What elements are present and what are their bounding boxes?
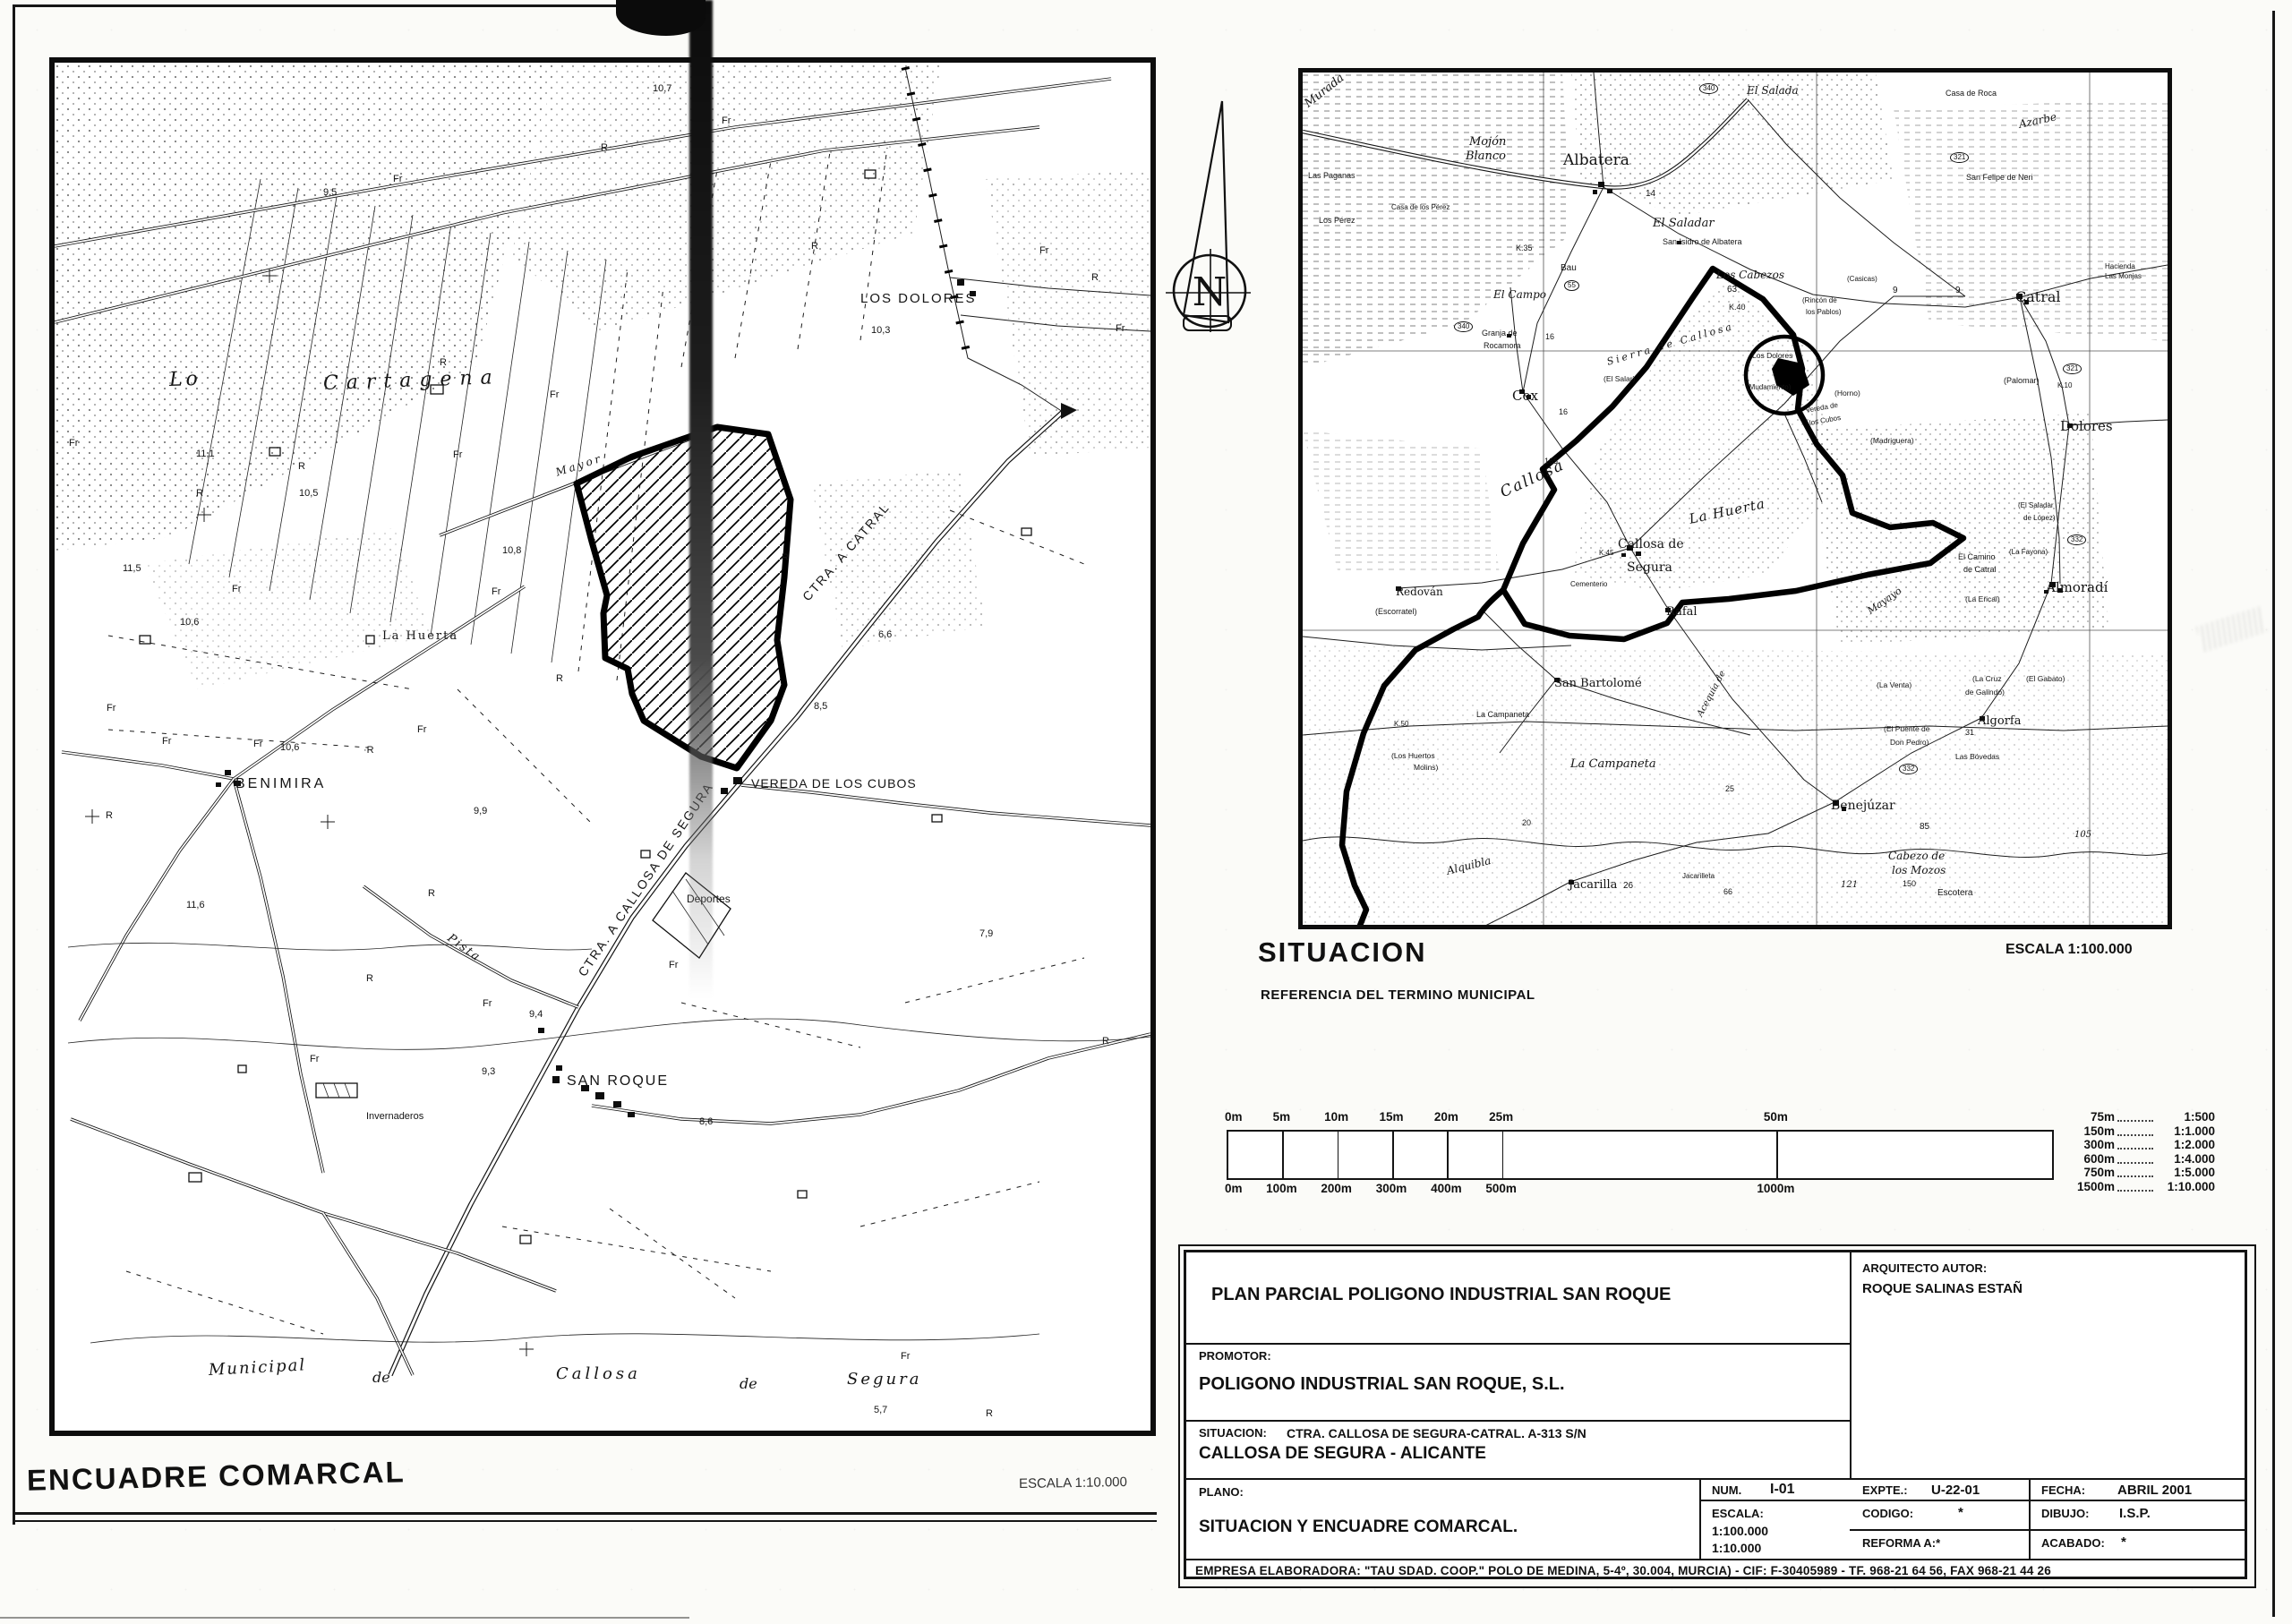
map-label: Los Dolores — [1752, 352, 1792, 360]
map-label: Callosa de — [1618, 538, 1684, 551]
graphic-scale-bar: 0m5m10m15m20m25m50m 0m100m200m300m400m50… — [1225, 1108, 2219, 1201]
map-label: 121 — [1841, 881, 1858, 890]
map-label: Fr — [393, 175, 402, 184]
map-label: R — [811, 242, 818, 252]
scale-ratio-part: 1500m — [2065, 1180, 2115, 1193]
scale-ratio-row: 1500m1:10.000 — [2065, 1180, 2215, 1193]
map-label: El Saladar — [1653, 218, 1715, 229]
acabado-value: * — [2121, 1534, 2126, 1550]
scale-mark: 10m — [1324, 1110, 1348, 1124]
situacion-title: SITUACION — [1258, 936, 1427, 969]
map-label: K.35 — [1516, 244, 1533, 252]
scanned-plan-sheet: 10,7LOS DOLORES10,3LoCartagena9,511,110,… — [0, 0, 2292, 1624]
map-label: La Campaneta — [1570, 758, 1656, 770]
north-arrow: N — [1150, 76, 1294, 363]
scale-mark: 0m — [1225, 1182, 1243, 1195]
map-label: de — [740, 1377, 757, 1391]
map-label: 31 — [1965, 729, 1974, 737]
scan-fold-shadow — [689, 0, 713, 998]
escala-2: 1:10.000 — [1712, 1541, 1761, 1555]
map-label: El Campo — [1493, 289, 1546, 300]
map-label: 105 — [2074, 831, 2091, 840]
situacion-label: SITUACION: — [1199, 1426, 1267, 1440]
project-title: PLAN PARCIAL POLIGONO INDUSTRIAL SAN ROQ… — [1211, 1285, 1671, 1305]
map-label: Bau — [1561, 264, 1577, 273]
map-label: La Huerta — [382, 630, 458, 642]
map-label: SAN ROQUE — [567, 1074, 669, 1089]
map-label: Segura — [847, 1372, 921, 1388]
scale-ratio-part: 150m — [2065, 1124, 2115, 1138]
scan-edge — [0, 1617, 689, 1619]
scale-ratio-row: 75m1:500 — [2065, 1110, 2215, 1124]
map-label: 10,6 — [180, 618, 199, 628]
map-label: Fr — [69, 439, 78, 449]
map-label: Las Bóvedas — [1955, 753, 1999, 761]
plano-value: SITUACION Y ENCUADRE COMARCAL. — [1199, 1517, 1518, 1537]
map-label: 16 — [1545, 333, 1554, 341]
promotor-label: PROMOTOR: — [1199, 1349, 1271, 1363]
map-label: 340 — [1454, 321, 1473, 332]
num-value: I-01 — [1770, 1482, 1795, 1498]
map-label: R — [601, 143, 608, 153]
map-label: K.45 — [1599, 550, 1613, 557]
map-label: Fr — [550, 390, 559, 400]
map-label: Fr — [107, 704, 115, 714]
map-label: Fr — [453, 450, 462, 460]
sheet-border — [13, 1520, 1157, 1522]
map-label: Pista — [445, 932, 483, 964]
scale-ratio-part — [2117, 1148, 2153, 1150]
right-map-labels: MuradaMojónBlancoAlbateraEl SaladaCasa d… — [1303, 73, 2168, 925]
promotor-value: POLIGONO INDUSTRIAL SAN ROQUE, S.L. — [1199, 1374, 1565, 1395]
map-label: Lo — [169, 370, 202, 390]
map-label: Fr — [162, 737, 171, 747]
scale-mark: 1000m — [1757, 1182, 1794, 1195]
map-label: Fr — [492, 587, 500, 597]
map-label: Cabezo de — [1888, 850, 1945, 861]
map-label: 55 — [1564, 280, 1579, 291]
map-label: 16 — [1559, 408, 1568, 416]
map-label: San Isidro de Albatera — [1663, 238, 1742, 246]
map-label: Fr — [483, 999, 492, 1009]
situacion-subtitle: REFERENCIA DEL TERMINO MUNICIPAL — [1261, 987, 1535, 1003]
scale-ratio-part — [2117, 1162, 2153, 1164]
map-label: Mojón — [1469, 136, 1506, 148]
map-label: (Escorratel) — [1375, 608, 1417, 616]
scale-tick — [1338, 1132, 1339, 1178]
empresa-note: EMPRESA ELABORADORA: "TAU SDAD. COOP." P… — [1195, 1564, 2051, 1577]
scale-tick — [1282, 1132, 1284, 1178]
map-label: Redován — [1396, 586, 1443, 597]
map-label: R — [106, 811, 113, 821]
map-label: K.40 — [1729, 303, 1746, 312]
map-label: Casa de los Pérez — [1391, 204, 1450, 211]
arquitecto-value: ROQUE SALINAS ESTAÑ — [1862, 1281, 2023, 1296]
map-label: 332 — [1899, 764, 1918, 774]
map-label: Blanco — [1466, 150, 1506, 162]
scale-mark: 50m — [1764, 1110, 1788, 1124]
map-label: (La Fayona) — [2009, 549, 2048, 556]
scale-bar-rect — [1227, 1130, 2054, 1180]
expte-value: U-22-01 — [1931, 1483, 1980, 1498]
map-label: R — [1102, 1037, 1109, 1047]
map-label: 332 — [2067, 534, 2086, 545]
scale-ratio-part: 750m — [2065, 1166, 2115, 1179]
map-label: de Galindo) — [1965, 688, 2005, 697]
map-label: Invernaderos — [366, 1112, 423, 1122]
map-label: 26 — [1623, 882, 1633, 891]
scale-tick — [1392, 1132, 1394, 1178]
scale-ratio-part: 1:10.000 — [2156, 1180, 2215, 1193]
map-label: 9,5 — [323, 188, 337, 198]
situacion-value: CTRA. CALLOSA DE SEGURA-CATRAL. A-313 S/… — [1287, 1426, 1586, 1440]
map-label: 10,3 — [871, 326, 890, 336]
map-label: de López) — [2023, 515, 2056, 522]
map-label: Casa de Roca — [1946, 90, 1997, 98]
map-label: 7,9 — [979, 929, 993, 939]
sheet-border — [13, 4, 691, 7]
map-label: (Rincón de — [1802, 297, 1837, 304]
map-label: R — [428, 889, 435, 899]
map-label: Cartagena — [323, 368, 500, 394]
map-label: los Cubos — [1809, 415, 1841, 427]
map-label: VEREDA DE LOS CUBOS — [751, 777, 917, 790]
map-label: (El Puente de — [1884, 725, 1930, 733]
map-label: Las Paganas — [1308, 172, 1356, 180]
sheet-border — [13, 4, 15, 1525]
map-label: Fr — [901, 1352, 910, 1362]
map-label: Almoradí — [2046, 581, 2108, 594]
map-label: Callosa — [556, 1366, 641, 1382]
map-label: 85 — [1920, 823, 1929, 832]
scale-ratio-part: 600m — [2065, 1152, 2115, 1166]
escala-label: ESCALA: — [1712, 1507, 1764, 1520]
fecha-value: ABRIL 2001 — [2117, 1483, 2192, 1498]
situacion-city: CALLOSA DE SEGURA - ALICANTE — [1199, 1444, 1486, 1464]
map-label: Las Monjas — [2105, 273, 2142, 280]
map-label: (La Cruz — [1972, 675, 2002, 683]
scale-ratio-part: 75m — [2065, 1110, 2115, 1124]
map-label: Jacarilleta — [1682, 873, 1715, 880]
map-label: (La Venta) — [1877, 681, 1911, 689]
scale-ratio-part: 1:4.000 — [2156, 1152, 2215, 1166]
map-label: (La Erical) — [1965, 595, 2000, 603]
arquitecto-label: ARQUITECTO AUTOR: — [1862, 1261, 1987, 1275]
scale-ratio-row: 600m1:4.000 — [2065, 1152, 2215, 1166]
num-label: NUM. — [1712, 1483, 1741, 1497]
fecha-label: FECHA: — [2041, 1483, 2085, 1497]
scale-mark: 20m — [1434, 1110, 1458, 1124]
map-label: El Salada — [1747, 85, 1799, 96]
scale-ratio-row: 750m1:5.000 — [2065, 1166, 2215, 1179]
map-label: Molins) — [1414, 764, 1438, 772]
map-label: CTRA. A CATRAL — [800, 500, 892, 603]
scale-ratio-part: 1:2.000 — [2156, 1138, 2215, 1151]
map-label: 10,8 — [502, 546, 521, 556]
map-label: R — [986, 1409, 993, 1419]
scale-mark: 200m — [1321, 1182, 1352, 1195]
map-label: 14 — [1646, 190, 1655, 199]
map-label: Fr — [417, 725, 426, 735]
codigo-label: CODIGO: — [1862, 1507, 1913, 1520]
map-label: Hacienda — [2105, 263, 2135, 270]
map-label: 340 — [1699, 83, 1718, 94]
scan-artifact — [616, 0, 706, 36]
map-label: ·R — [363, 746, 374, 756]
sheet-border — [2272, 11, 2275, 1617]
scale-tick — [1447, 1132, 1449, 1178]
map-label: de — [372, 1371, 390, 1385]
map-label: Fr — [232, 585, 241, 594]
expte-label: EXPTE.: — [1862, 1483, 1908, 1497]
map-label: 8,5 — [814, 702, 827, 712]
map-label: Fr — [722, 116, 731, 126]
map-label: El Camino — [1958, 553, 1996, 561]
map-label: San Bartolomé — [1554, 678, 1642, 689]
map-label: de Catral — [1963, 566, 1997, 574]
scale-ratio-part: 1:1.000 — [2156, 1124, 2215, 1138]
map-label: R — [1091, 273, 1099, 283]
map-label: (Casicas) — [1847, 276, 1877, 283]
map-label: 5,7 — [874, 1406, 887, 1415]
map-label: 10,5 — [299, 489, 318, 499]
map-label: Los Cabezos — [1716, 269, 1784, 280]
scale-ratio-row: 300m1:2.000 — [2065, 1138, 2215, 1151]
scale-ratio-part: 300m — [2065, 1138, 2115, 1151]
map-label: 8,6 — [699, 1117, 713, 1127]
map-label: Cementerio — [1570, 581, 1607, 588]
dibujo-label: DIBUJO: — [2041, 1507, 2089, 1520]
map-label: (Madriguera) — [1870, 437, 1914, 445]
scale-mark: 400m — [1431, 1182, 1462, 1195]
map-label: (Mudamiento) — [1747, 384, 1791, 391]
map-label: Catral — [2015, 290, 2061, 304]
map-label: Sierra de Callosa — [1605, 321, 1734, 367]
map-label: Escotera — [1937, 889, 1972, 898]
map-label: (Palomar) — [2004, 377, 2040, 385]
map-label: Fr — [1039, 246, 1048, 256]
situacion-scale: ESCALA 1:100.000 — [2005, 942, 2133, 958]
map-label: 20 — [1522, 819, 1531, 827]
map-label: R — [366, 974, 373, 984]
encuadre-comarcal-map: 10,7LOS DOLORES10,3LoCartagena9,511,110,… — [49, 57, 1156, 1436]
map-label: 66 — [1723, 888, 1732, 896]
map-label: 10,6 — [280, 743, 299, 753]
map-label: 9,3 — [482, 1067, 495, 1077]
map-label: Fr — [1116, 324, 1125, 334]
map-label: Fr — [310, 1055, 319, 1064]
map-label: Fr — [669, 961, 678, 970]
scale-bottom-marks: 0m100m200m300m400m500m1000m — [1227, 1182, 2050, 1195]
map-label: (El Saladar — [2018, 502, 2054, 509]
map-label: los Mozos — [1892, 865, 1946, 876]
map-label: La Campaneta — [1476, 711, 1529, 719]
map-label: Municipal — [209, 1357, 307, 1379]
scale-mark: 100m — [1266, 1182, 1297, 1195]
left-map-caption: ENCUADRE COMARCAL — [27, 1455, 406, 1498]
map-label: 150 — [1903, 880, 1916, 888]
map-label: K.50 — [1394, 721, 1408, 728]
plano-label: PLANO: — [1199, 1485, 1244, 1499]
scale-mark: 500m — [1485, 1182, 1517, 1195]
map-label: R — [556, 674, 563, 684]
map-label: R — [440, 358, 447, 368]
map-label: 11,6 — [186, 901, 205, 910]
map-label: Vereda de — [1805, 402, 1838, 415]
map-label: Jacarilla — [1569, 879, 1617, 891]
map-label: 321 — [1950, 152, 1969, 163]
map-label: 9,4 — [529, 1010, 543, 1020]
sheet-border — [13, 1512, 1157, 1515]
map-label: BENIMIRA — [235, 777, 326, 791]
scale-tick — [1776, 1132, 1778, 1178]
map-label: (Los Huertos — [1391, 752, 1435, 760]
map-label: Los Pérez — [1319, 217, 1356, 225]
map-label: Rafal — [1666, 606, 1698, 618]
scale-ratio-part — [2117, 1120, 2153, 1122]
map-label: 11,5 — [123, 564, 141, 574]
map-label: Mayayo — [1866, 585, 1903, 616]
map-label: (El Gabato) — [2026, 675, 2065, 683]
scale-ratio-part: 1:500 — [2156, 1110, 2215, 1124]
map-label: Cox — [1512, 389, 1538, 403]
situacion-map: MuradaMojónBlancoAlbateraEl SaladaCasa d… — [1298, 68, 2172, 929]
scale-ratio-row: 150m1:1.000 — [2065, 1124, 2215, 1138]
map-label: (Horno) — [1834, 389, 1860, 397]
map-label: Don Pedro) — [1890, 739, 1929, 747]
map-label: Fr — [253, 739, 262, 749]
map-label: Alquibla — [1446, 855, 1492, 876]
map-label: LOS DOLORES — [860, 292, 977, 305]
reforma-label: REFORMA A:* — [1862, 1536, 1940, 1550]
map-label: 11,1 — [196, 449, 215, 459]
map-label: los Pablos) — [1806, 309, 1842, 316]
map-label: 6,6 — [878, 630, 892, 640]
escala-1: 1:100.000 — [1712, 1524, 1768, 1538]
codigo-value: * — [1958, 1505, 1963, 1520]
title-block: PLAN PARCIAL POLIGONO INDUSTRIAL SAN ROQ… — [1184, 1250, 2247, 1579]
scale-mark: 25m — [1489, 1110, 1513, 1124]
map-label: 10,7 — [653, 84, 671, 94]
map-label: Benejúzar — [1831, 799, 1895, 812]
dibujo-value: I.S.P. — [2119, 1506, 2151, 1521]
left-map-scale: ESCALA 1:10.000 — [1019, 1474, 1127, 1492]
map-label: Rocamora — [1484, 342, 1521, 350]
map-label: R — [782, 553, 789, 563]
north-letter: N — [1193, 269, 1227, 315]
scale-mark: 5m — [1273, 1110, 1291, 1124]
scale-ratio-part: 1:5.000 — [2156, 1166, 2215, 1179]
map-label: 321 — [2063, 363, 2082, 374]
map-label: Callosa — [1498, 457, 1567, 500]
map-label: Mayor — [554, 453, 603, 478]
scale-mark: 15m — [1379, 1110, 1403, 1124]
scan-smudge — [2195, 606, 2268, 653]
scale-mark: 300m — [1376, 1182, 1407, 1195]
map-label: R — [298, 462, 305, 472]
map-label: Acequia de — [1697, 670, 1728, 718]
scale-mark: 0m — [1225, 1110, 1243, 1124]
map-label: (El Salar) — [1604, 375, 1635, 383]
map-label: R — [196, 489, 203, 499]
map-label: La Huerta — [1688, 497, 1766, 526]
scale-ratio-part — [2117, 1134, 2153, 1136]
map-label: Granja de — [1482, 329, 1518, 338]
scale-ratio-part — [2117, 1175, 2153, 1177]
map-label: 9 — [1893, 286, 1898, 295]
left-map-labels: 10,7LOS DOLORES10,3LoCartagena9,511,110,… — [55, 63, 1150, 1431]
map-label: Albatera — [1563, 153, 1629, 168]
map-label: K.10 — [2057, 382, 2072, 389]
map-label: 25 — [1725, 785, 1734, 793]
acabado-label: ACABADO: — [2041, 1536, 2105, 1550]
map-label: Azarbe — [2018, 111, 2057, 130]
scale-top-marks: 0m5m10m15m20m25m50m — [1227, 1110, 2050, 1124]
map-label: Algorfa — [1978, 715, 2021, 727]
scale-ratio-part — [2117, 1190, 2153, 1192]
map-label: 9,9 — [474, 807, 487, 816]
map-label: San Felipe de Neri — [1966, 174, 2033, 182]
map-label: 9 — [1955, 286, 1961, 295]
map-label: Segura — [1627, 561, 1672, 574]
map-label: Dolores — [2060, 420, 2113, 433]
map-label: Murada — [1303, 73, 1347, 110]
map-label: 63 — [1727, 286, 1737, 295]
scale-tick — [1502, 1132, 1504, 1178]
